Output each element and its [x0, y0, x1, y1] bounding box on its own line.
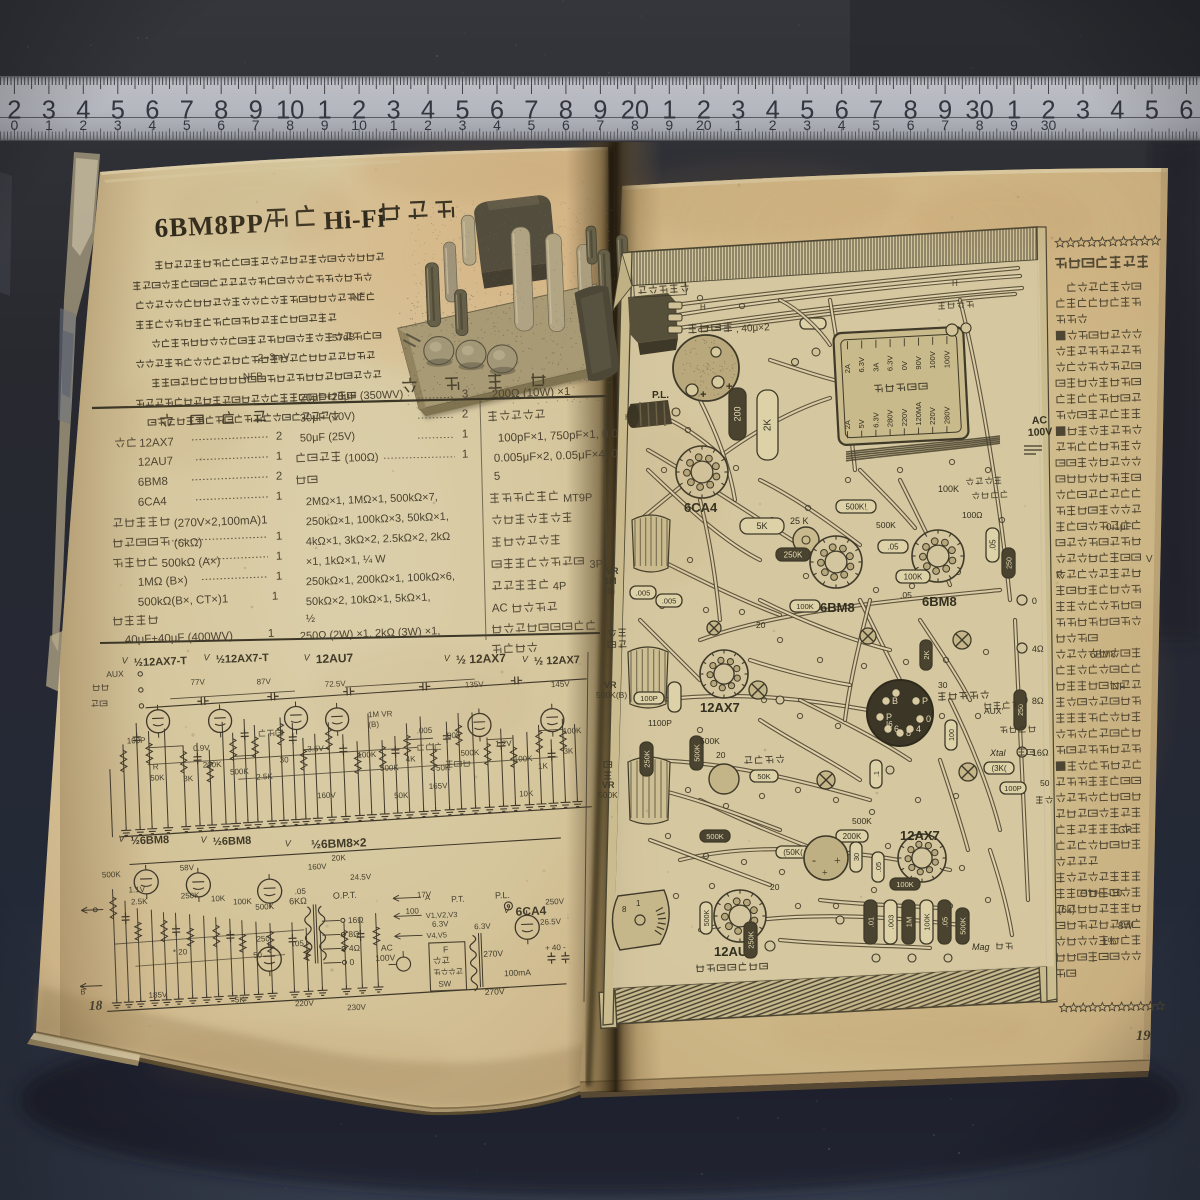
- svg-text:H: H: [952, 279, 958, 288]
- svg-text:200: 200: [733, 406, 743, 421]
- svg-text:3.5V: 3.5V: [307, 744, 324, 754]
- svg-text:1: 1: [272, 591, 279, 603]
- svg-text:6.3V: 6.3V: [886, 356, 895, 371]
- svg-text:½6BM8: ½6BM8: [130, 834, 169, 847]
- svg-text:50K: 50K: [394, 791, 409, 801]
- svg-text:+: +: [822, 868, 828, 879]
- svg-text:250V: 250V: [545, 897, 565, 907]
- svg-text:R: R: [1056, 570, 1063, 581]
- svg-text:280V: 280V: [942, 407, 951, 425]
- svg-text:250K: 250K: [643, 750, 652, 768]
- svg-text:SW: SW: [438, 979, 452, 989]
- svg-text:5: 5: [1145, 97, 1159, 125]
- svg-text:500K: 500K: [380, 763, 400, 773]
- svg-text:AUX: AUX: [106, 669, 124, 680]
- svg-text:6BM8: 6BM8: [922, 594, 957, 609]
- svg-text:8W: 8W: [1118, 921, 1134, 932]
- svg-text:200K: 200K: [203, 760, 223, 770]
- svg-text:3: 3: [114, 117, 122, 133]
- svg-text:AC: AC: [492, 602, 508, 615]
- svg-text:2.5K: 2.5K: [256, 772, 273, 782]
- svg-text:220V: 220V: [928, 407, 937, 425]
- svg-text:500K: 500K: [102, 870, 122, 880]
- svg-text:4: 4: [838, 117, 846, 133]
- svg-text:20: 20: [756, 620, 766, 630]
- svg-text:P: P: [922, 696, 928, 706]
- svg-text:1: 1: [462, 449, 469, 461]
- svg-text:1M: 1M: [604, 576, 617, 586]
- svg-text:3: 3: [462, 388, 469, 400]
- svg-text:4Ω: 4Ω: [1032, 644, 1044, 654]
- svg-text:160V: 160V: [317, 791, 337, 801]
- svg-text:6KΩ: 6KΩ: [289, 896, 307, 907]
- svg-text:6BM8: 6BM8: [138, 476, 168, 489]
- svg-text:77V: 77V: [190, 677, 205, 687]
- svg-text:6BM8: 6BM8: [820, 600, 855, 615]
- svg-text:6.3V: 6.3V: [857, 357, 866, 372]
- svg-text:100K: 100K: [514, 754, 534, 764]
- svg-text:3K: 3K: [563, 746, 574, 755]
- svg-text:250: 250: [1007, 557, 1014, 569]
- svg-text:100K: 100K: [796, 602, 814, 611]
- svg-text:P.L.: P.L.: [652, 390, 669, 401]
- svg-text:2A: 2A: [843, 420, 852, 429]
- svg-text:9: 9: [321, 117, 329, 133]
- svg-text:165V: 165V: [429, 781, 449, 791]
- svg-text:100V: 100V: [942, 351, 951, 369]
- svg-text:, 40μ×2: , 40μ×2: [736, 322, 771, 335]
- svg-text:2A: 2A: [843, 364, 852, 373]
- svg-text:100P: 100P: [640, 694, 658, 703]
- svg-text:0: 0: [11, 117, 19, 133]
- svg-text:250K: 250K: [784, 551, 803, 560]
- svg-text:57dB: 57dB: [332, 332, 356, 344]
- svg-text:NFB: NFB: [243, 371, 264, 383]
- svg-text:.05: .05: [887, 543, 899, 552]
- svg-text:17V: 17V: [417, 890, 432, 900]
- svg-text:B: B: [80, 987, 85, 996]
- svg-text:500K(B): 500K(B): [596, 690, 627, 700]
- svg-text:185V: 185V: [148, 990, 168, 1000]
- svg-text:½ 12AX7: ½ 12AX7: [534, 654, 580, 668]
- svg-text:.05: .05: [941, 917, 950, 927]
- svg-text:4P: 4P: [553, 580, 567, 593]
- svg-text:.05: .05: [293, 939, 305, 948]
- svg-text:8: 8: [631, 117, 639, 133]
- svg-text:30: 30: [1041, 117, 1057, 133]
- svg-text:0V: 0V: [900, 361, 909, 370]
- svg-text:7: 7: [597, 117, 605, 133]
- svg-text:6.3V: 6.3V: [871, 412, 880, 427]
- svg-text:1: 1: [276, 550, 283, 562]
- svg-text:7: 7: [941, 117, 949, 133]
- svg-text:3: 3: [1076, 97, 1090, 125]
- svg-text:50: 50: [1040, 778, 1050, 788]
- svg-text:1: 1: [390, 117, 398, 133]
- svg-text:30μF (10V): 30μF (10V): [300, 410, 356, 424]
- svg-text:100: 100: [405, 906, 419, 916]
- svg-text:5K: 5K: [235, 995, 246, 1004]
- svg-text:2: 2: [424, 117, 432, 133]
- svg-text:5: 5: [528, 117, 536, 133]
- svg-text:100V: 100V: [1028, 426, 1053, 439]
- svg-text:F: F: [443, 944, 449, 954]
- svg-text:220V: 220V: [900, 409, 909, 427]
- svg-text:500K!: 500K!: [846, 503, 867, 512]
- svg-text:100K: 100K: [896, 880, 914, 889]
- svg-text:500kΩ (A×): 500kΩ (A×): [161, 556, 220, 570]
- svg-text:100K: 100K: [563, 726, 583, 736]
- svg-text:(100Ω): (100Ω): [344, 452, 378, 465]
- svg-text:230V: 230V: [347, 1003, 367, 1013]
- svg-text:8: 8: [622, 905, 627, 914]
- svg-text:½12AX7-T: ½12AX7-T: [134, 655, 188, 669]
- svg-text:MT9P: MT9P: [563, 492, 593, 505]
- svg-text:6CA4: 6CA4: [138, 496, 168, 509]
- svg-text:6: 6: [1179, 97, 1193, 125]
- svg-text:100Ω: 100Ω: [962, 510, 983, 520]
- svg-text:3A: 3A: [871, 363, 880, 372]
- svg-text:V4,V5: V4,V5: [426, 930, 447, 940]
- svg-text:4: 4: [493, 117, 501, 133]
- svg-text:½6BM8×2: ½6BM8×2: [311, 835, 368, 851]
- svg-text:OTH—10: OTH—10: [1080, 888, 1123, 900]
- svg-text:12AX7: 12AX7: [900, 828, 940, 843]
- svg-text:O.P.T.: O.P.T.: [333, 890, 357, 901]
- svg-text:200K: 200K: [843, 832, 862, 841]
- svg-text:500K: 500K: [230, 767, 250, 777]
- svg-text:1: 1: [276, 530, 283, 542]
- svg-text:10K: 10K: [211, 894, 226, 904]
- svg-text:4: 4: [916, 724, 921, 734]
- svg-text:3P: 3P: [589, 558, 603, 571]
- svg-text:4: 4: [1110, 97, 1124, 125]
- svg-text:(3K(: (3K(: [991, 764, 1006, 773]
- svg-text:4Ω: 4Ω: [349, 943, 360, 953]
- svg-text:500K: 500K: [704, 910, 711, 927]
- svg-text:100K: 100K: [904, 573, 923, 582]
- svg-text:16Ω: 16Ω: [348, 915, 364, 926]
- svg-text:1: 1: [276, 450, 283, 462]
- svg-text:1%: 1%: [1102, 937, 1117, 948]
- svg-text:50K: 50K: [757, 772, 770, 781]
- svg-text:.05: .05: [295, 887, 307, 896]
- svg-text:CR: CR: [1118, 825, 1133, 836]
- svg-text:87V: 87V: [256, 677, 271, 687]
- svg-text:270V: 270V: [485, 986, 506, 997]
- svg-text:6.3V: 6.3V: [474, 922, 491, 932]
- svg-text:30: 30: [852, 853, 861, 861]
- svg-text:100P: 100P: [1004, 784, 1022, 793]
- svg-text:.005: .005: [636, 589, 651, 598]
- svg-text:24.5V: 24.5V: [350, 872, 372, 882]
- svg-text:6: 6: [907, 117, 915, 133]
- svg-text:12AX7: 12AX7: [700, 700, 740, 715]
- svg-text:2: 2: [79, 117, 87, 133]
- svg-text:0: 0: [349, 957, 354, 967]
- svg-text:19: 19: [1136, 1028, 1151, 1044]
- svg-text:50K: 50K: [150, 773, 165, 783]
- svg-text:145V: 145V: [551, 679, 571, 689]
- svg-text:160V: 160V: [308, 862, 328, 872]
- svg-text:5: 5: [872, 117, 880, 133]
- svg-text:0: 0: [926, 714, 931, 724]
- svg-text:AUX': AUX': [984, 706, 1003, 716]
- svg-text:2K: 2K: [922, 650, 931, 659]
- svg-text:500K: 500K: [706, 832, 724, 841]
- svg-text:(6kΩ): (6kΩ): [174, 537, 203, 550]
- svg-text:VR: VR: [606, 566, 619, 576]
- svg-text:6CA4: 6CA4: [515, 904, 547, 919]
- svg-text:* 20: * 20: [173, 947, 188, 957]
- svg-text:B: B: [892, 696, 898, 706]
- svg-text:120MA: 120MA: [914, 402, 923, 426]
- svg-text:+: +: [834, 853, 841, 867]
- svg-text:.003: .003: [887, 915, 896, 930]
- svg-text:.01: .01: [867, 917, 876, 927]
- svg-text:220V: 220V: [295, 999, 315, 1009]
- svg-text:18: 18: [89, 998, 103, 1013]
- svg-text:5: 5: [183, 117, 191, 133]
- svg-text:+ 40 -: + 40 -: [545, 943, 566, 953]
- svg-text:250K: 250K: [181, 891, 201, 901]
- svg-text:280V: 280V: [886, 410, 895, 428]
- svg-text:1: 1: [636, 899, 641, 908]
- svg-text:0.9V: 0.9V: [193, 743, 210, 753]
- svg-text:NF: NF: [352, 291, 366, 303]
- svg-text:500K: 500K: [598, 790, 618, 800]
- svg-text:20: 20: [716, 750, 726, 760]
- svg-text:100P: 100P: [127, 736, 146, 746]
- svg-text:9: 9: [665, 117, 673, 133]
- svg-text:100K: 100K: [923, 913, 932, 931]
- svg-text:250: 250: [256, 934, 270, 944]
- svg-text:P.L.: P.L.: [495, 890, 510, 901]
- svg-text:3: 3: [459, 117, 467, 133]
- svg-text:0.1μF: 0.1μF: [1106, 522, 1132, 534]
- svg-text:2: 2: [769, 117, 777, 133]
- svg-text:1: 1: [734, 117, 742, 133]
- svg-text:1.1V: 1.1V: [128, 885, 145, 895]
- svg-text:½6BM8: ½6BM8: [213, 835, 252, 848]
- svg-text:½12AX7-T: ½12AX7-T: [216, 652, 270, 666]
- svg-text:2K: 2K: [763, 419, 774, 432]
- svg-text:20: 20: [696, 117, 712, 133]
- svg-text:V: V: [1146, 554, 1153, 565]
- svg-text:500K: 500K: [959, 917, 968, 935]
- svg-text:I6: I6: [886, 720, 893, 729]
- svg-text:100V: 100V: [375, 952, 396, 963]
- svg-text:.05: .05: [874, 862, 883, 872]
- svg-text:30: 30: [279, 755, 289, 764]
- svg-text:0: 0: [1032, 596, 1037, 606]
- svg-text:10K: 10K: [519, 789, 534, 799]
- svg-text:1M: 1M: [905, 917, 914, 927]
- svg-text:8Ω: 8Ω: [1032, 696, 1044, 706]
- svg-text:3: 3: [803, 117, 811, 133]
- svg-text:3K: 3K: [183, 774, 194, 783]
- svg-text:2: 2: [462, 408, 469, 420]
- svg-text:.05: .05: [989, 539, 998, 551]
- svg-text:8: 8: [976, 117, 984, 133]
- svg-text:500K: 500K: [852, 816, 872, 826]
- svg-text:6: 6: [562, 117, 570, 133]
- svg-text:AC: AC: [1032, 414, 1048, 427]
- svg-text:25 K: 25 K: [790, 516, 809, 526]
- svg-text:90V: 90V: [914, 356, 923, 369]
- svg-text:1: 1: [268, 628, 275, 640]
- svg-text:VR: VR: [602, 780, 615, 790]
- svg-text:2~3mV: 2~3mV: [258, 352, 291, 364]
- svg-text:270V: 270V: [483, 948, 504, 959]
- svg-text:1K: 1K: [538, 761, 549, 770]
- svg-text:2: 2: [276, 470, 283, 482]
- svg-text:.1: .1: [874, 771, 881, 777]
- svg-text:1: 1: [276, 490, 283, 502]
- svg-text:2.5K: 2.5K: [131, 897, 148, 907]
- svg-text:58V: 58V: [180, 863, 195, 873]
- svg-text:50μF (25V): 50μF (25V): [300, 430, 356, 444]
- svg-text:1MΩ (B×): 1MΩ (B×): [138, 575, 188, 589]
- svg-text:½: ½: [306, 613, 316, 625]
- svg-text:100: 100: [949, 729, 956, 741]
- svg-text:26.5V: 26.5V: [540, 917, 562, 927]
- svg-text:VR: VR: [604, 680, 617, 690]
- svg-text:H: H: [700, 303, 706, 312]
- svg-text:(6k): (6k): [1058, 905, 1075, 916]
- svg-text:5: 5: [494, 471, 501, 483]
- svg-text:500K: 500K: [693, 744, 702, 762]
- svg-text:5K: 5K: [756, 521, 767, 531]
- svg-text:P.T.: P.T.: [451, 894, 465, 905]
- svg-text:9: 9: [1010, 117, 1018, 133]
- svg-text:10: 10: [351, 117, 367, 133]
- svg-text:20K: 20K: [331, 853, 346, 863]
- svg-text:100K: 100K: [938, 484, 959, 494]
- svg-text:(8): (8): [604, 586, 615, 596]
- svg-text:Xtal: Xtal: [989, 748, 1007, 758]
- svg-text:6: 6: [217, 117, 225, 133]
- svg-text:500K: 500K: [255, 902, 275, 912]
- svg-text:1: 1: [45, 117, 53, 133]
- svg-text:Mag: Mag: [972, 942, 990, 952]
- svg-text:20: 20: [770, 882, 780, 892]
- svg-text:8: 8: [286, 117, 294, 133]
- svg-text:500K: 500K: [876, 520, 896, 530]
- svg-text:7: 7: [252, 117, 260, 133]
- svg-text:50: 50: [253, 950, 263, 959]
- svg-text:AC: AC: [381, 942, 393, 952]
- svg-text:8Ω: 8Ω: [348, 929, 359, 939]
- svg-text:.05: .05: [900, 590, 912, 600]
- svg-text:1: 1: [462, 428, 469, 440]
- svg-text:6.3V: 6.3V: [432, 919, 449, 929]
- svg-text:500K: 500K: [700, 736, 720, 746]
- svg-text:4: 4: [148, 117, 156, 133]
- svg-text:1100P: 1100P: [648, 718, 672, 728]
- svg-text:100V: 100V: [928, 351, 937, 369]
- svg-text:250K: 250K: [747, 931, 756, 949]
- svg-text:-: -: [812, 853, 816, 867]
- svg-text:100K: 100K: [233, 897, 253, 907]
- svg-text:(50K(: (50K(: [783, 848, 803, 857]
- svg-text:30: 30: [938, 680, 948, 690]
- svg-text:2: 2: [276, 430, 283, 442]
- svg-text:+: +: [700, 389, 706, 401]
- svg-text:100mA: 100mA: [504, 967, 532, 978]
- svg-text:.005: .005: [662, 597, 677, 606]
- svg-text:5V: 5V: [857, 419, 866, 428]
- svg-text:R: R: [153, 762, 159, 771]
- svg-text:1: 1: [276, 570, 283, 582]
